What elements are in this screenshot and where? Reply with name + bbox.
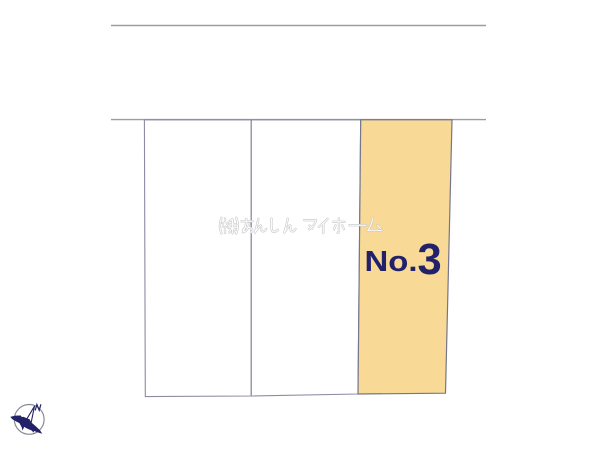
svg-text:No.: No. xyxy=(365,246,418,278)
svg-text:3: 3 xyxy=(418,236,442,284)
